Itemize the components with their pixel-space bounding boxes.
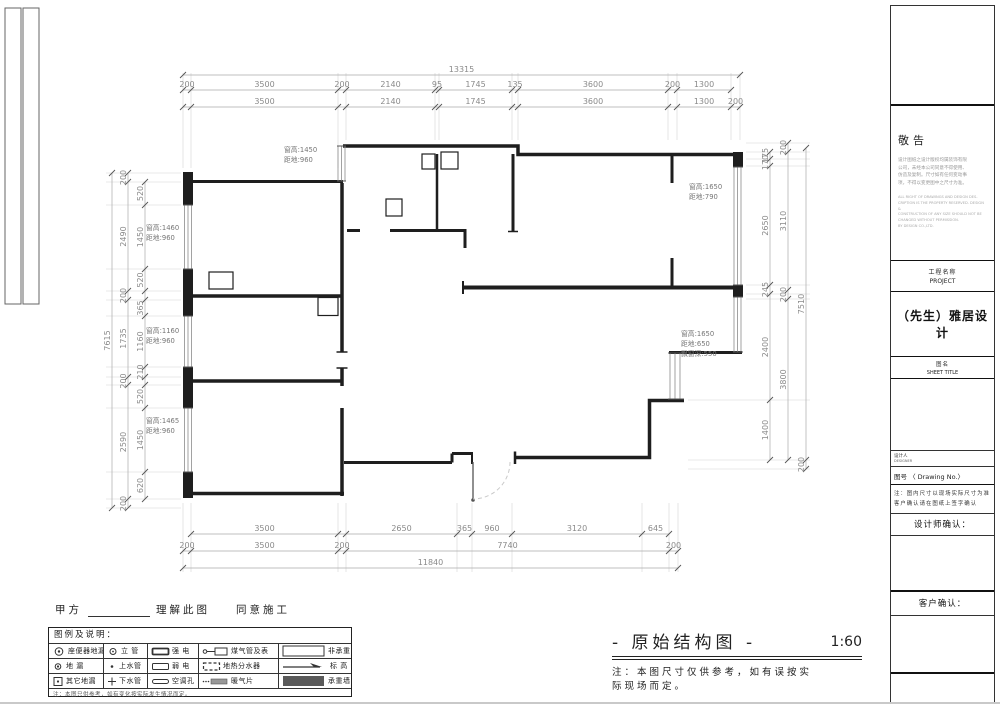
sheet-title-empty: [891, 379, 994, 451]
wall-columns: [183, 152, 743, 498]
svg-text:200: 200: [334, 80, 349, 89]
notice-text-en: ALL RIGHT OF DRAWINGS AND DESIGN DES-CRI…: [898, 195, 987, 230]
svg-text:1745: 1745: [465, 80, 485, 89]
legend-item-label: 承重墙: [328, 676, 350, 686]
text-line: 际现场而定。: [612, 680, 862, 694]
client-confirm-section: 客户确认：: [891, 592, 994, 674]
wall-top: [343, 146, 742, 155]
project-label-section: 工程名称 PROJECT: [891, 261, 994, 292]
radiator-icon: [202, 676, 229, 687]
legend-item-label: 下水管: [119, 676, 142, 686]
svg-text:2140: 2140: [380, 80, 400, 89]
title-block-panel: 敬告 设计图纸之设计版权均属装饰有限公司，未经本公司同意不得使用、仿造及复制。尺…: [890, 5, 995, 703]
drawing-title: - 原始结构图 -: [612, 628, 756, 653]
pipe-riser-icon: [107, 646, 119, 657]
understand-label: 理解此图: [156, 602, 210, 617]
svg-text:960: 960: [484, 524, 499, 533]
project-name: （先生）雅居设计: [891, 307, 994, 341]
legend-item: 下水管: [104, 674, 148, 688]
legend-item: 承重墙: [279, 674, 350, 688]
legend-item-label: 立 管: [121, 646, 139, 656]
weak-elec-icon: [151, 661, 170, 672]
designer-section: 设计人 DESIGNER: [891, 451, 994, 467]
svg-text:2490: 2490: [119, 226, 128, 246]
project-label-cn: 工程名称: [928, 267, 956, 276]
svg-text:3500: 3500: [254, 97, 274, 106]
window-right-2: [734, 297, 741, 352]
svg-text:距地:960: 距地:960: [146, 336, 175, 345]
sheet-label-cn: 图名: [936, 360, 949, 368]
svg-text:1300: 1300: [694, 97, 714, 106]
legend-item: 地热分水器: [199, 659, 279, 673]
text-line: 仿造及复制。尺寸如有任何变动事: [898, 172, 987, 180]
legend-item-label: 标 高: [330, 661, 348, 671]
titleblock-note: 注：图内尺寸以现场实际尺寸为准客户确认请在图纸上签字确认: [891, 485, 994, 514]
svg-text:窗高:1450: 窗高:1450: [284, 145, 317, 154]
notice-section: 敬告 设计图纸之设计版权均属装饰有限公司，未经本公司同意不得使用、仿造及复制。尺…: [891, 106, 994, 261]
designer-label-en: DESIGNER: [894, 459, 994, 463]
legend-header: 图例及说明：: [49, 628, 351, 644]
svg-text:200: 200: [119, 288, 128, 303]
svg-text:3500: 3500: [254, 524, 274, 533]
legend-item-label: 其它地漏: [66, 676, 96, 686]
svg-text:200: 200: [797, 457, 806, 472]
walls: [186, 146, 742, 496]
svg-text:距地:790: 距地:790: [689, 192, 718, 201]
legend-item: 煤气管及表: [199, 644, 279, 658]
legend-item: 立 管: [104, 644, 148, 658]
svg-text:3110: 3110: [779, 211, 788, 231]
other-drain-icon: [52, 676, 64, 687]
elevation-icon: [282, 661, 328, 672]
svg-text:1300: 1300: [694, 80, 714, 89]
text-line: 公司，未经本公司同意不得使用、: [898, 165, 987, 173]
svg-text:2140: 2140: [380, 97, 400, 106]
svg-text:3500: 3500: [254, 80, 274, 89]
legend-box: 图例及说明： 座便器地漏立 管强 电煤气管及表非承重墙地 漏上水管弱 电地热分水…: [48, 627, 352, 697]
svg-text:3600: 3600: [583, 80, 603, 89]
floor-plan: 1331520035002002140951745135360020013003…: [0, 0, 1000, 707]
svg-text:365: 365: [457, 524, 472, 533]
svg-text:13315: 13315: [449, 65, 474, 74]
legend-item-label: 非承重墙: [328, 646, 350, 656]
svg-text:1745: 1745: [465, 97, 485, 106]
floor-drain-icon: [52, 661, 64, 672]
legend-item-label: 暖气片: [231, 676, 254, 686]
party-approval-row: 甲方 理解此图 同意施工: [55, 602, 290, 617]
drawing-note: 注：本图尺寸仅供参考，如有误按实际现场而定。: [612, 666, 862, 694]
svg-text:距地:960: 距地:960: [146, 233, 175, 242]
svg-text:200: 200: [179, 80, 194, 89]
project-name-section: （先生）雅居设计: [891, 292, 994, 357]
sheet-bottom-edge: [0, 702, 1000, 704]
legend-item: 标 高: [279, 659, 350, 673]
windows: [183, 146, 743, 472]
floor-heating-manifold-icon: [202, 661, 221, 672]
svg-text:1160: 1160: [136, 331, 145, 351]
svg-text:200: 200: [779, 140, 788, 155]
wc-drain-icon: [52, 646, 66, 657]
legend-item: 弱 电: [148, 659, 199, 673]
text-line: 注：本图尺寸仅供参考，如有误按实: [612, 666, 862, 680]
window-left-3: [185, 408, 192, 472]
drawing-no-label: 图号 〈 Drawing No.〉: [894, 473, 964, 481]
sheet-label-en: SHEET TITLE: [927, 370, 958, 376]
text-line: 项，不得以变更图中之尺寸为准。: [898, 180, 987, 188]
svg-text:窗高:1465: 窗高:1465: [146, 416, 179, 425]
ac-hole-icon: [151, 676, 170, 687]
window-left-2: [185, 316, 192, 367]
party-a-signature-line: [88, 605, 150, 617]
svg-text:7740: 7740: [497, 541, 517, 550]
svg-text:窗高:1650: 窗高:1650: [689, 182, 722, 191]
wall-hall-bottom: [344, 454, 472, 463]
legend-item: 其它地漏: [49, 674, 104, 688]
text-line: ALL RIGHT OF DRAWINGS AND DESIGN DES-: [898, 195, 987, 201]
titleblock-bottom-strip: [891, 674, 994, 702]
notice-text-cn: 设计图纸之设计版权均属装饰有限公司，未经本公司同意不得使用、仿造及复制。尺寸如有…: [898, 157, 987, 187]
legend-note: 注：本图只供参考，如有变化按实际发生情况而定。: [49, 689, 351, 698]
party-a-label: 甲方: [55, 602, 82, 617]
svg-text:窗高:1460: 窗高:1460: [146, 223, 179, 232]
svg-text:200: 200: [119, 170, 128, 185]
wall-hall-left-caps: [337, 352, 348, 368]
window-height-labels: 窗高:1450距地:960窗高:1460距地:960窗高:1160距地:960窗…: [146, 145, 722, 435]
svg-text:3800: 3800: [779, 369, 788, 389]
svg-text:200: 200: [779, 287, 788, 302]
drawing-scale: 1:60: [831, 634, 862, 650]
window-left-1: [185, 205, 192, 269]
wall-bottom-right: [515, 401, 684, 458]
legend-item-label: 座便器地漏: [68, 646, 104, 656]
svg-text:200: 200: [666, 541, 681, 550]
svg-text:3120: 3120: [567, 524, 587, 533]
legend-item: 座便器地漏: [49, 644, 104, 658]
svg-text:520: 520: [136, 186, 145, 201]
window-caps: [183, 146, 743, 472]
bearing-wall-icon: [282, 675, 326, 687]
svg-text:200: 200: [119, 373, 128, 388]
window-right-1: [734, 167, 741, 285]
legend-item: 上水管: [104, 659, 148, 673]
legend-item: 暖气片: [199, 674, 279, 688]
drawing-no-section: 图号 〈 Drawing No.〉: [891, 467, 994, 485]
svg-text:窗高:1160: 窗高:1160: [146, 326, 179, 335]
door-swing-arc: [473, 462, 510, 499]
designer-confirm-section: 设计师确认：: [891, 514, 994, 592]
svg-text:170: 170: [761, 155, 770, 170]
svg-text:距地:650: 距地:650: [681, 339, 710, 348]
designer-confirm-label: 设计师确认：: [891, 514, 994, 536]
svg-text:7615: 7615: [103, 330, 112, 350]
svg-text:7510: 7510: [797, 294, 806, 314]
water-drain-icon: [107, 676, 117, 687]
svg-text:11840: 11840: [418, 558, 443, 567]
window-bay: [670, 353, 680, 399]
legend-item-label: 地热分水器: [223, 661, 261, 671]
svg-text:520: 520: [136, 389, 145, 404]
entry-door: [471, 462, 510, 502]
svg-text:200: 200: [728, 97, 743, 106]
svg-text:200: 200: [119, 496, 128, 511]
svg-text:飘窗深:550: 飘窗深:550: [681, 349, 717, 358]
svg-text:200: 200: [179, 541, 194, 550]
gas-meter-icon: [202, 646, 229, 657]
svg-text:2650: 2650: [391, 524, 411, 533]
legend-item-label: 地 漏: [66, 661, 84, 671]
svg-text:3600: 3600: [583, 97, 603, 106]
svg-text:1735: 1735: [119, 328, 128, 348]
svg-text:245: 245: [761, 282, 770, 297]
legend-item-label: 上水管: [119, 661, 142, 671]
legend-item-label: 煤气管及表: [231, 646, 269, 656]
svg-text:2650: 2650: [761, 215, 770, 235]
svg-text:520: 520: [136, 272, 145, 287]
svg-text:200: 200: [665, 80, 680, 89]
legend-row: 地 漏上水管弱 电地热分水器标 高: [49, 659, 351, 674]
svg-text:1450: 1450: [136, 430, 145, 450]
legend-row: 座便器地漏立 管强 电煤气管及表非承重墙: [49, 644, 351, 659]
sheet-title-section: 图名 SHEET TITLE: [891, 357, 994, 379]
text-line: BY DESIGN CO.,LTD.: [898, 224, 987, 230]
svg-text:365: 365: [136, 300, 145, 315]
strong-elec-icon: [151, 646, 170, 657]
legend-item-label: 强 电: [172, 646, 190, 656]
svg-text:95: 95: [432, 80, 442, 89]
water-supply-icon: [107, 661, 117, 672]
drawing-title-block: - 原始结构图 - 1:60 注：本图尺寸仅供参考，如有误按实际现场而定。: [612, 628, 862, 694]
svg-text:窗高:1650: 窗高:1650: [681, 329, 714, 338]
title-underline: [612, 656, 862, 660]
svg-text:1400: 1400: [761, 420, 770, 440]
svg-text:210: 210: [136, 364, 145, 379]
text-line: 注：图内尺寸以现场实际尺寸为准: [894, 489, 994, 499]
svg-text:200: 200: [334, 541, 349, 550]
client-confirm-label: 客户确认：: [891, 592, 994, 616]
frame-strips: [5, 8, 39, 304]
legend-row: 其它地漏下水管空调孔暖气片承重墙: [49, 674, 351, 689]
legend-item: 非承重墙: [279, 644, 350, 658]
titleblock-empty-top: [891, 6, 994, 106]
svg-text:2590: 2590: [119, 432, 128, 452]
legend-item: 强 电: [148, 644, 199, 658]
notice-title: 敬告: [898, 132, 987, 148]
piers-and-flues: [209, 152, 458, 316]
window-top: [338, 146, 345, 181]
legend-item-label: 弱 电: [172, 661, 190, 671]
project-label-en: PROJECT: [930, 278, 956, 285]
legend-item: 地 漏: [49, 659, 104, 673]
text-line: 客户确认请在图纸上签字确认: [894, 499, 994, 509]
nonbearing-wall-icon: [282, 645, 326, 657]
svg-text:1450: 1450: [136, 227, 145, 247]
dimensions: 1331520035002002140951745135360020013003…: [103, 65, 810, 572]
svg-text:645: 645: [648, 524, 663, 533]
legend-item: 空调孔: [148, 674, 199, 688]
legend-rows: 座便器地漏立 管强 电煤气管及表非承重墙地 漏上水管弱 电地热分水器标 高其它地…: [49, 644, 351, 689]
svg-text:2400: 2400: [761, 337, 770, 357]
svg-text:距地:960: 距地:960: [146, 426, 175, 435]
drawing-sheet: { "sheet": { "party_a": "甲方", "understan…: [0, 0, 1000, 707]
svg-text:135: 135: [507, 80, 522, 89]
legend-item-label: 空调孔: [172, 676, 195, 686]
agree-label: 同意施工: [236, 602, 290, 617]
text-line: 设计图纸之设计版权均属装饰有限: [898, 157, 987, 165]
text-line: CRIPTION IS THE PROPERTY RESERVED. DESIG…: [898, 201, 987, 213]
svg-text:距地:960: 距地:960: [284, 155, 313, 164]
svg-text:3500: 3500: [254, 541, 274, 550]
svg-text:620: 620: [136, 478, 145, 493]
